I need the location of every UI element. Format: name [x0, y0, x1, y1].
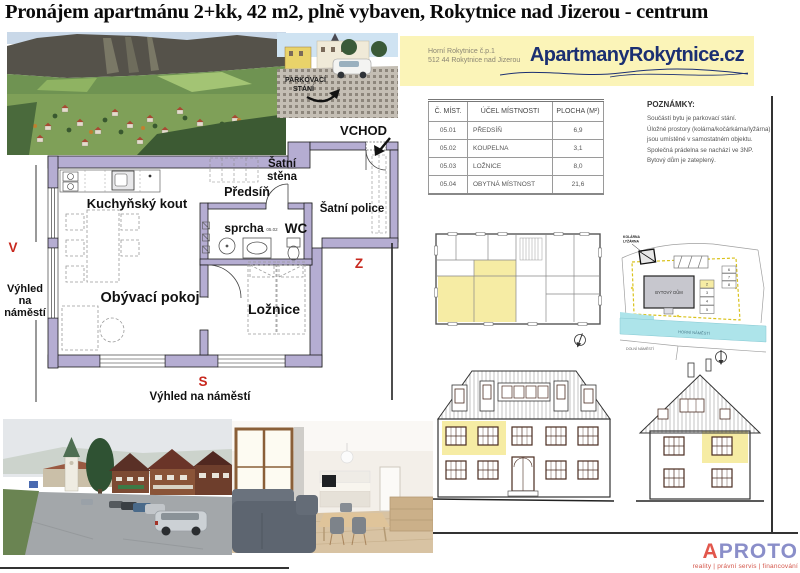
sofa [232, 489, 318, 553]
table-row: 05.04 OBYTNÁ MÍSTNOST 21,6 [429, 176, 604, 195]
col-header-number: Č. MÍST. [429, 101, 468, 122]
building-label: BYTOVÝ DŮM [655, 290, 683, 295]
aproto-logo: APROTO reality | právní servis | financo… [636, 541, 798, 570]
garages [674, 256, 708, 268]
shelf-label: Šatní police [320, 202, 385, 215]
mountain-line-icon [500, 66, 748, 80]
storage-label-1: KOLÁRNA [623, 234, 641, 239]
cell: PŘEDSÍŇ [468, 122, 553, 140]
table-row: 05.01 PŘEDSÍŇ 6,9 [429, 122, 604, 140]
cell: 05.03 [429, 158, 468, 176]
address-line1: Horní Rokytnice č.p.1 [428, 47, 520, 56]
room-table: Č. MÍST. ÚČEL MÍSTNOSTI PLOCHA (M²) 05.0… [428, 99, 604, 195]
scan-edge-line [0, 567, 289, 569]
logo-rest: PROTO [719, 540, 798, 563]
kitchen-label: Kuchyňský kout [87, 196, 188, 211]
parking-label-line1: PARKOVACÍ [285, 75, 327, 84]
bedroom-label: Ložnice [248, 301, 300, 317]
table-header-row: Č. MÍST. ÚČEL MÍSTNOSTI PLOCHA (M²) [429, 101, 604, 122]
col-header-purpose: ÚČEL MÍSTNOSTI [468, 101, 553, 122]
cell: 3,1 [553, 140, 604, 158]
kitchen-counter [60, 170, 160, 192]
sideboard [390, 497, 433, 531]
note-line: Součástí bytu je parkovací stání. [647, 114, 777, 125]
logo-tagline: reality | právní servis | financování [636, 563, 798, 570]
view-left-2: na [19, 295, 33, 307]
parking-photo: PARKOVACÍ STÁNÍ [277, 33, 398, 118]
note-line: Společná prádelna se nachází ve 3NP. [647, 146, 777, 157]
cell: LOŽNICE [468, 158, 553, 176]
cell: 8,0 [553, 158, 604, 176]
square-label: DOLNÍ NÁMĚSTÍ [626, 346, 654, 351]
storage-pointer [632, 244, 642, 252]
table-row: 05.03 LOŽNICE 8,0 [429, 158, 604, 176]
shower-label: sprcha [224, 221, 264, 235]
cell: 05.01 [429, 122, 468, 140]
floor-plan: Kuchyňský kout Předsíň Šatní stěna Šatní… [0, 115, 420, 405]
tree [86, 438, 114, 492]
kitchen-back-wall [320, 471, 370, 507]
north-arrow-icon [572, 332, 587, 350]
note-line: Úložné prostory (kolárna/kočárkárna/lyžá… [647, 125, 777, 136]
logo-letter-a: A [703, 540, 719, 563]
cell: 05.02 [429, 140, 468, 158]
site-plan: 2 3 4 5 6 7 8 KOLÁRNA LYŽÁRNA BYTOVÝ DŮM… [616, 228, 772, 368]
compass-east: V [8, 240, 17, 255]
wc-label: WC [285, 221, 308, 236]
view-left-1: Výhled [7, 283, 43, 295]
cell: KOUPELNA [468, 140, 553, 158]
table-row: 05.02 KOUPELNA 3,1 [429, 140, 604, 158]
cell: 21,6 [553, 176, 604, 195]
notes-block: POZNÁMKY: Součástí bytu je parkovací stá… [647, 100, 777, 167]
closet-label-2: stěna [267, 171, 298, 183]
note-line: jsou umístěné v samostatném objektu. [647, 135, 777, 146]
note-line: Bytový dům je zateplený. [647, 156, 777, 167]
view-left-3: náměstí [4, 307, 47, 319]
pendant-light [341, 451, 353, 463]
brand-header: Horní Rokytnice č.p.1 512 44 Rokytnice n… [400, 36, 754, 86]
brand-logo-text: ApartmanyRokytnice.cz [530, 44, 744, 67]
compass-south: S [198, 374, 207, 389]
entrance-label: VCHOD [340, 123, 387, 138]
address-line2: 512 44 Rokytnice nad Jizerou [428, 56, 520, 65]
chalet-row [109, 449, 232, 495]
compass-west: Z [355, 256, 363, 271]
parking-label-line2: STÁNÍ [293, 84, 315, 93]
building-floor-plan [428, 226, 608, 358]
notes-heading: POZNÁMKY: [647, 100, 777, 109]
cell: 05.04 [429, 176, 468, 195]
side-elevation [636, 359, 764, 501]
elevation-drawings [428, 357, 773, 535]
building-entrance [664, 308, 673, 314]
hall-label: Předsíň [224, 185, 270, 199]
closet-label-1: Šatní [268, 157, 297, 170]
storage-label-2: LYŽÁRNA [623, 239, 639, 244]
entrance-door [508, 457, 538, 496]
cell: OBYTNÁ MÍSTNOST [468, 176, 553, 195]
interior-photo [232, 421, 433, 553]
col-header-area: PLOCHA (M²) [553, 101, 604, 122]
front-elevation [432, 371, 614, 501]
bath-number: 05.02 [266, 227, 278, 232]
listing-flyer: Pronájem apartmánu 2+kk, 42 m2, plně vyb… [0, 0, 800, 573]
address: Horní Rokytnice č.p.1 512 44 Rokytnice n… [428, 47, 520, 65]
street-photo [3, 419, 232, 555]
living-label: Obývací pokoj [100, 290, 199, 306]
page-title: Pronájem apartmánu 2+kk, 42 m2, plně vyb… [5, 1, 797, 24]
cell: 6,9 [553, 122, 604, 140]
view-bottom: Výhled na náměstí [150, 391, 252, 403]
